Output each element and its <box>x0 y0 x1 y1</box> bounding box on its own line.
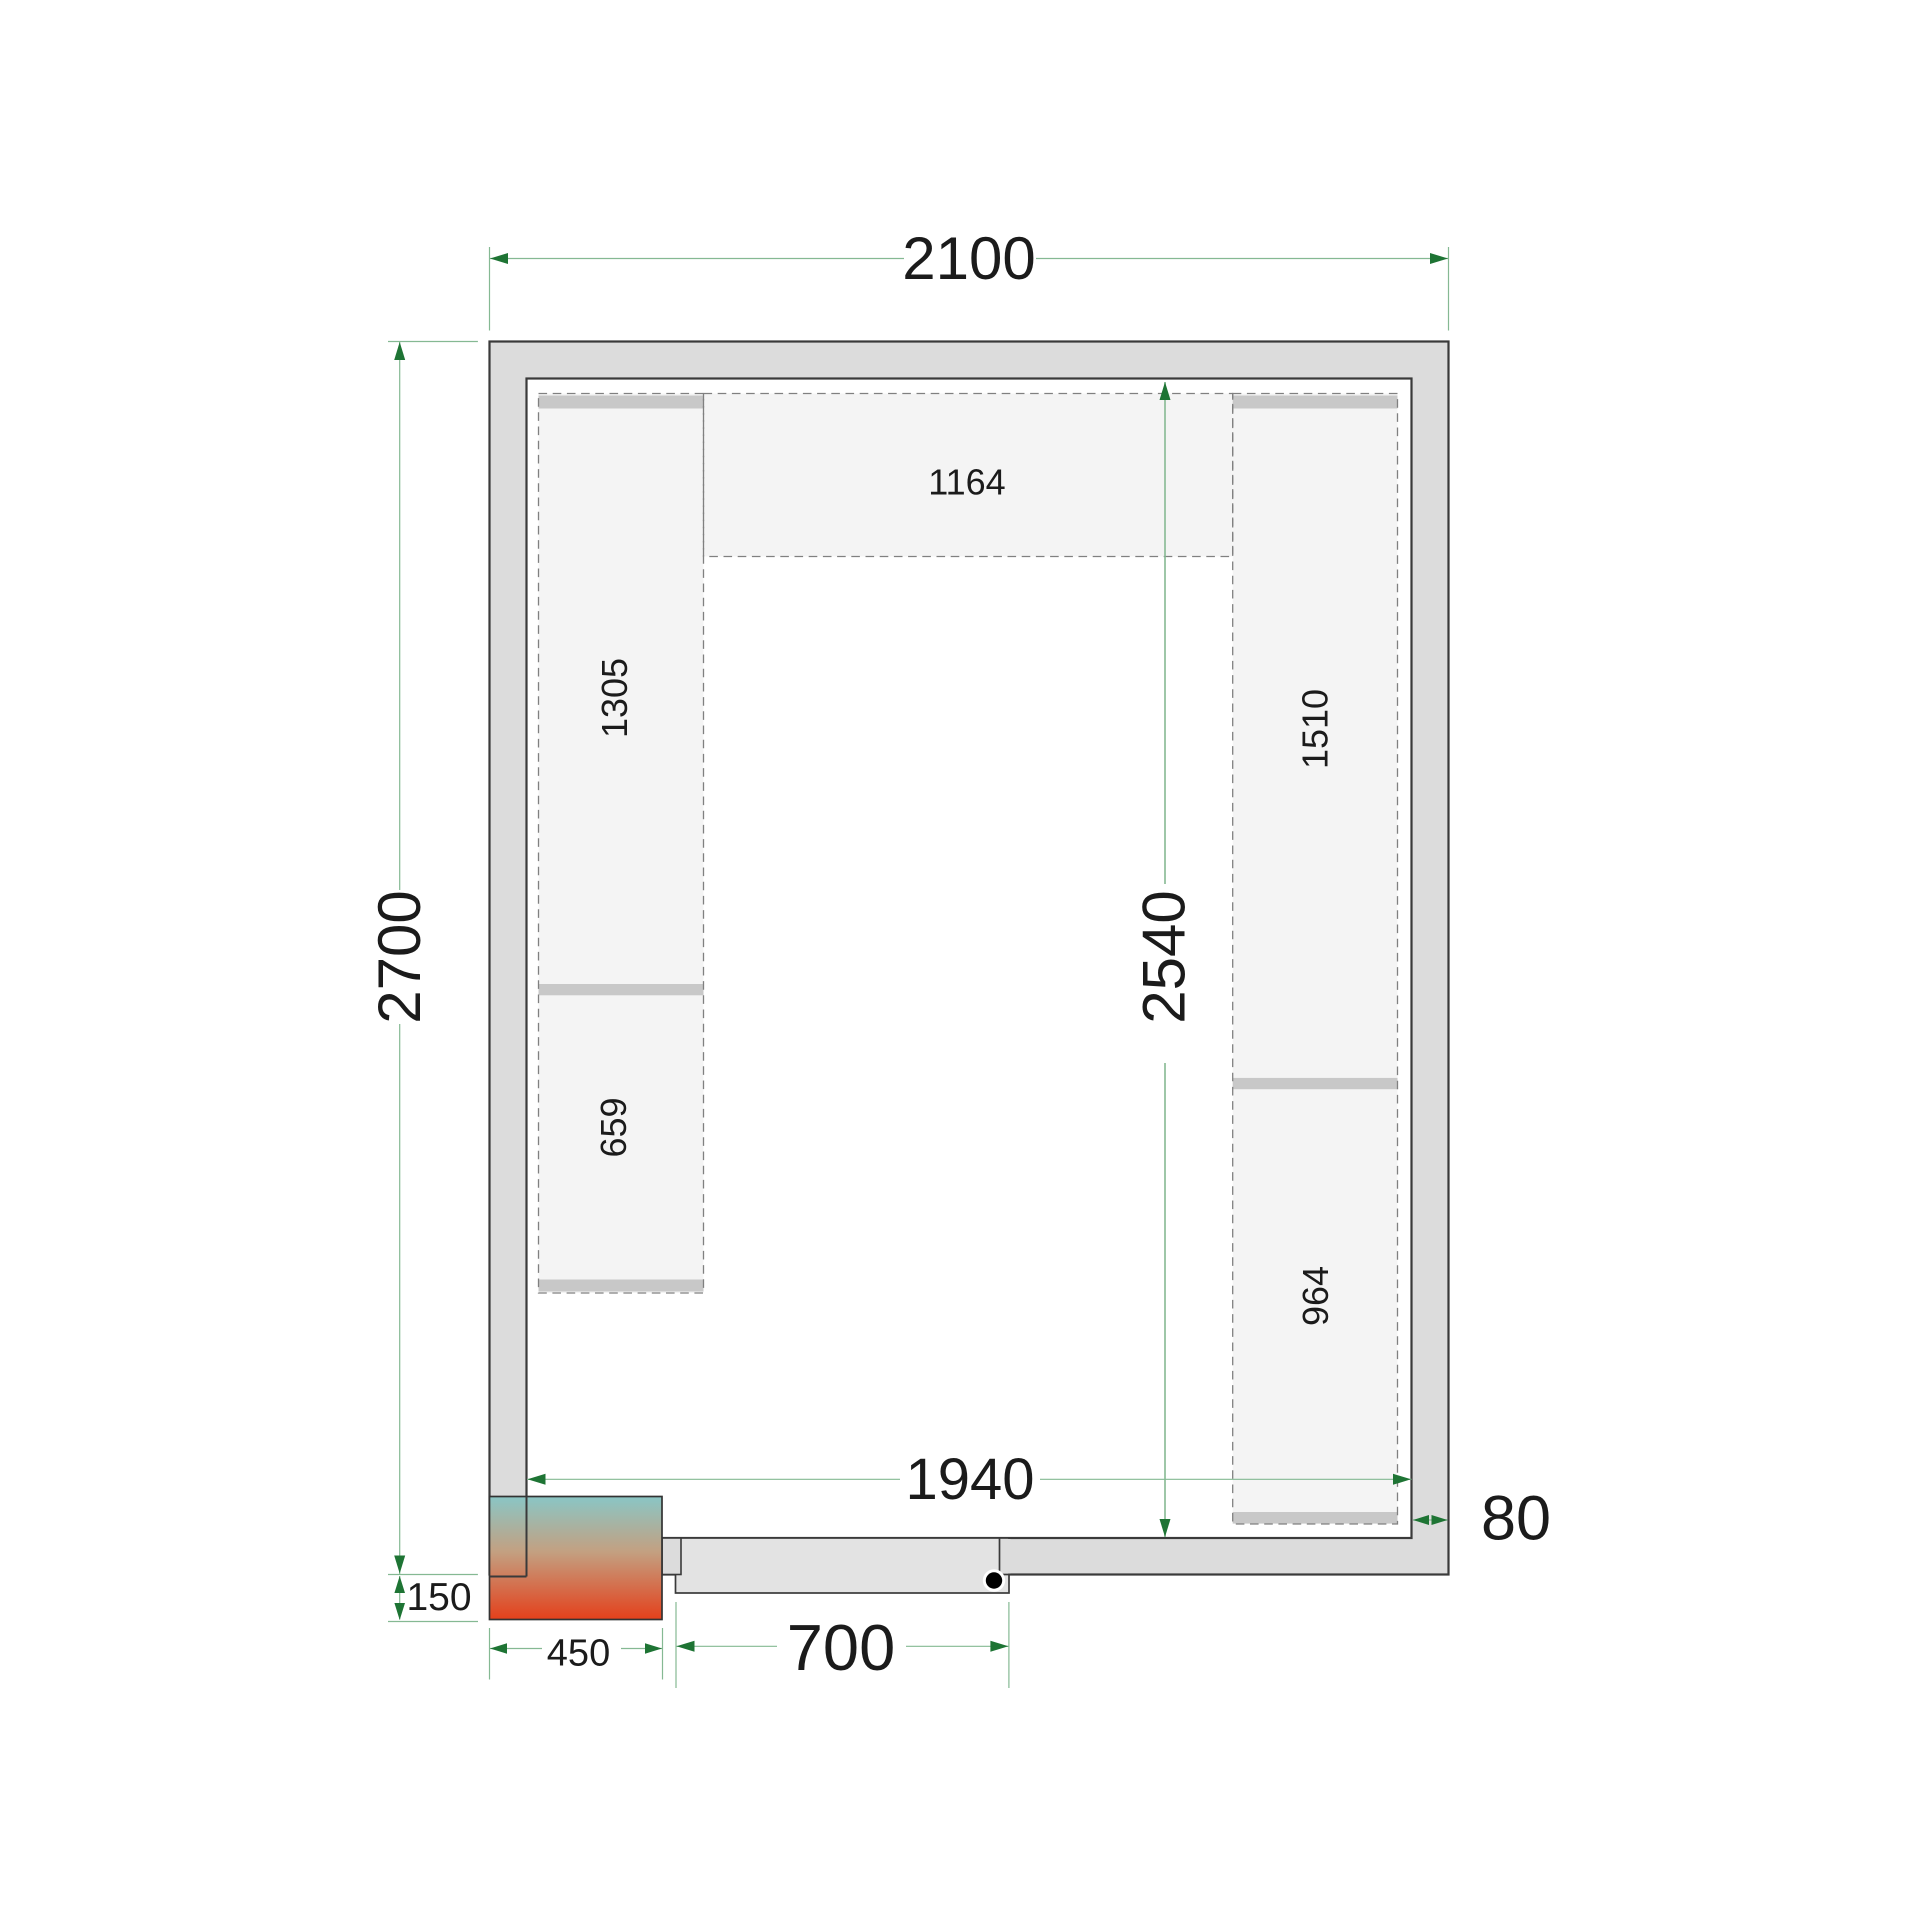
svg-text:150: 150 <box>406 1576 471 1619</box>
svg-text:1510: 1510 <box>1295 689 1336 769</box>
svg-text:659: 659 <box>593 1097 634 1157</box>
svg-text:964: 964 <box>1295 1266 1336 1326</box>
svg-text:2700: 2700 <box>366 890 433 1023</box>
svg-text:1164: 1164 <box>928 462 1005 503</box>
svg-text:80: 80 <box>1481 1484 1551 1554</box>
svg-text:1940: 1940 <box>905 1447 1034 1512</box>
svg-text:2540: 2540 <box>1131 890 1198 1023</box>
svg-text:1305: 1305 <box>594 658 635 738</box>
svg-text:450: 450 <box>547 1633 610 1675</box>
svg-text:2100: 2100 <box>902 225 1035 292</box>
svg-text:700: 700 <box>787 1611 895 1684</box>
